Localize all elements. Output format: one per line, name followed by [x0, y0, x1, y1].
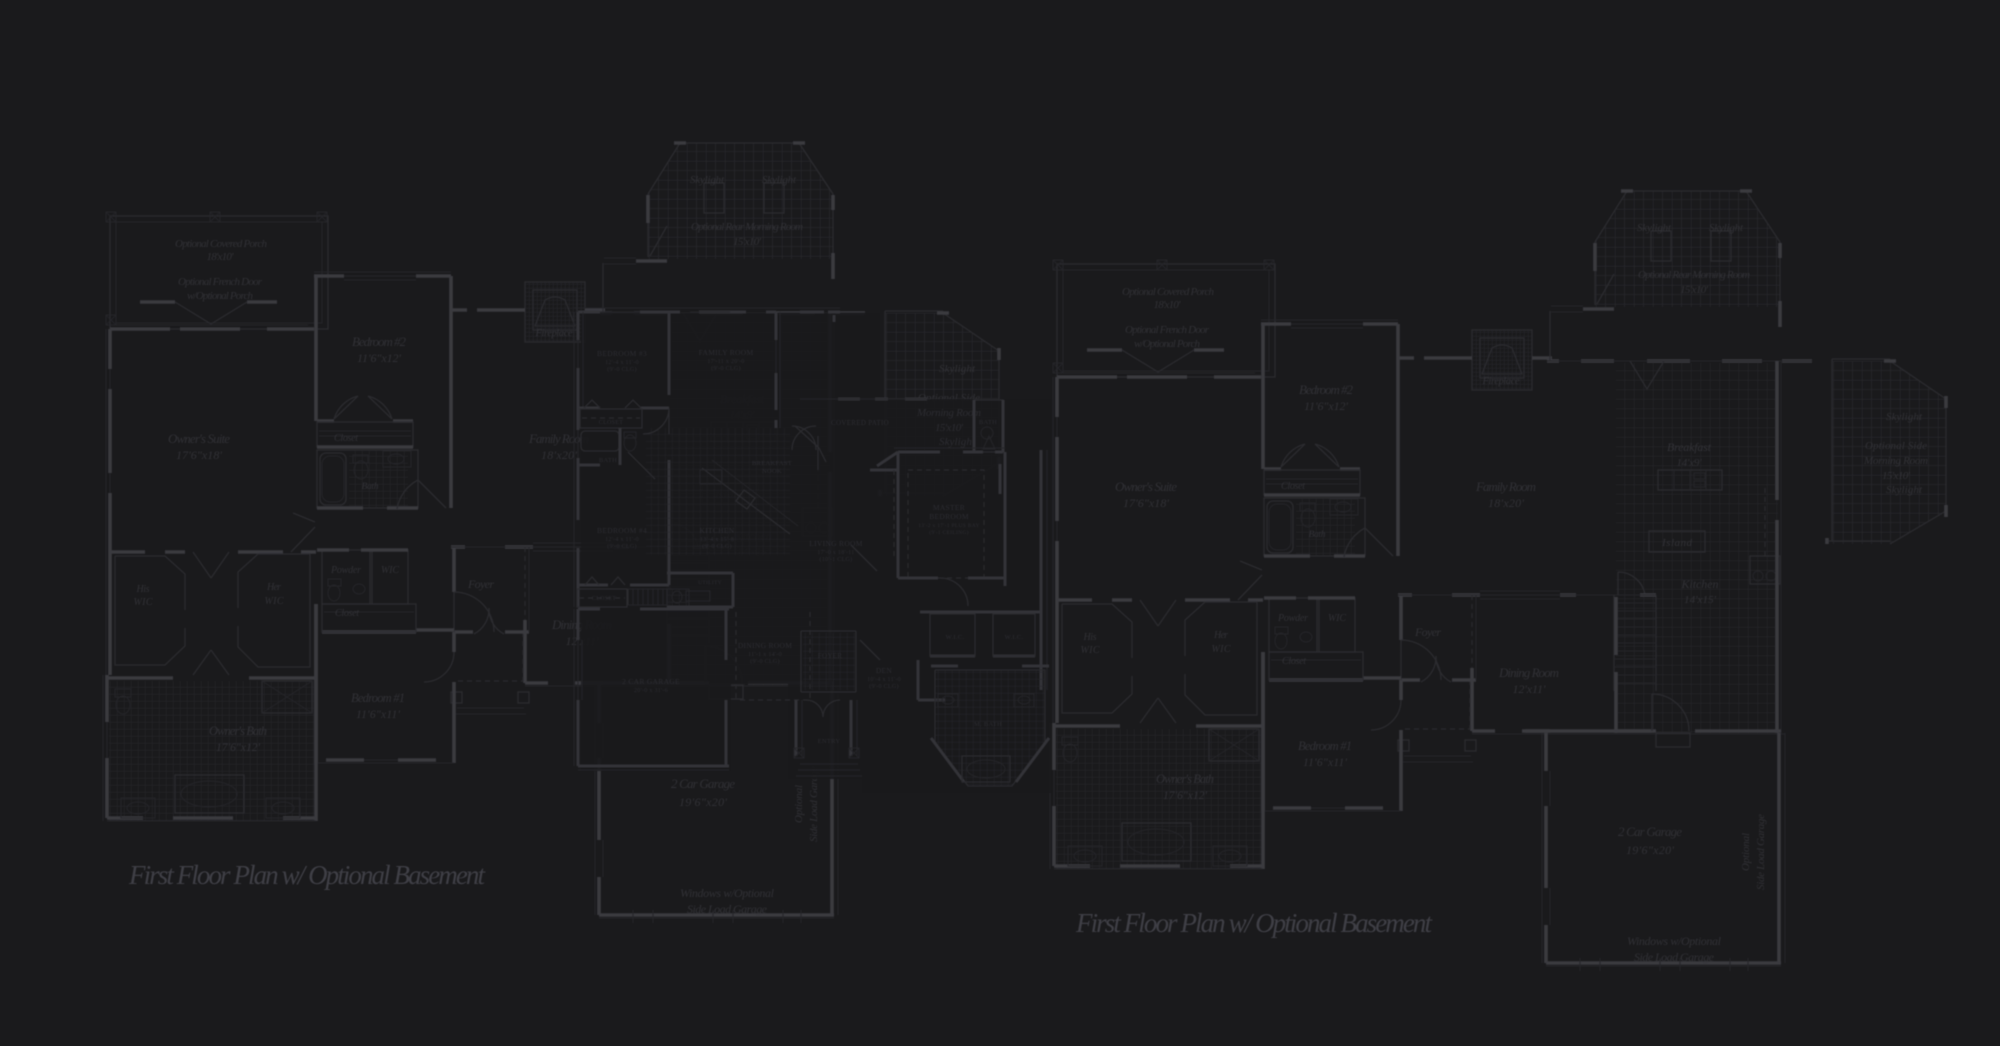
svg-text:BATH: BATH	[979, 419, 997, 426]
svg-text:(9'-1 CEILING): (9'-1 CEILING)	[929, 529, 969, 536]
svg-text:BREAKFAST: BREAKFAST	[752, 460, 792, 467]
svg-text:(9'-0 CLG): (9'-0 CLG)	[607, 366, 637, 373]
svg-text:W.I.C.: W.I.C.	[1005, 634, 1024, 641]
svg-text:13'-2 x 17'-1 PLUS BAY: 13'-2 x 17'-1 PLUS BAY	[918, 523, 980, 529]
svg-text:LIVING ROOM: LIVING ROOM	[809, 539, 863, 548]
svg-text:CLOSET: CLOSET	[599, 420, 624, 426]
svg-text:(9'-0 CLG): (9'-0 CLG)	[607, 543, 637, 550]
svg-text:Skylight: Skylight	[939, 436, 976, 448]
svg-text:13'-4 x 15'-8: 13'-4 x 15'-8	[700, 537, 734, 543]
svg-text:DEN: DEN	[876, 666, 893, 675]
svg-text:CLOSET: CLOSET	[592, 596, 617, 602]
svg-text:KITCHEN: KITCHEN	[699, 526, 734, 535]
svg-text:COVERED PATIO: COVERED PATIO	[831, 419, 889, 427]
svg-text:17'-0 x 18'-11: 17'-0 x 18'-11	[817, 550, 854, 556]
svg-text:10'-4 x 11'-0: 10'-4 x 11'-0	[867, 677, 901, 683]
svg-text:NOOK: NOOK	[762, 468, 782, 475]
svg-text:FOYER: FOYER	[818, 652, 842, 660]
svg-text:2 CAR GARAGE: 2 CAR GARAGE	[622, 677, 680, 686]
svg-text:M. BATH: M. BATH	[974, 721, 1002, 728]
svg-text:(10'-1 CLG): (10'-1 CLG)	[820, 556, 853, 563]
svg-text:DINING ROOM: DINING ROOM	[738, 641, 792, 650]
svg-text:Morning Room: Morning Room	[916, 407, 981, 419]
svg-text:(9'-0 CLG): (9'-0 CLG)	[711, 365, 741, 372]
svg-text:UTILITY: UTILITY	[698, 580, 722, 586]
svg-text:ENTRY: ENTRY	[818, 738, 841, 745]
svg-text:BEDROOM #4: BEDROOM #4	[597, 526, 647, 535]
svg-text:W.I.C.: W.I.C.	[946, 634, 965, 641]
svg-text:MASTER: MASTER	[933, 503, 965, 512]
svg-text:17'-11 x 20'-0: 17'-11 x 20'-0	[707, 359, 744, 365]
svg-text:(9'-0 CLG): (9'-0 CLG)	[869, 683, 899, 690]
svg-text:15'x10': 15'x10'	[935, 422, 964, 434]
svg-text:FAMILY ROOM: FAMILY ROOM	[699, 348, 754, 357]
svg-text:BEDROOM #3: BEDROOM #3	[597, 349, 647, 358]
svg-text:20'-0 x 31'-6: 20'-0 x 31'-6	[634, 688, 668, 694]
svg-text:(9'-0 CLG): (9'-0 CLG)	[702, 543, 732, 550]
svg-text:11'-1 x 14'-0: 11'-1 x 14'-0	[748, 652, 782, 658]
svg-text:BATH: BATH	[599, 457, 617, 464]
svg-text:BEDROOM: BEDROOM	[929, 512, 969, 521]
svg-text:12'-4 x 11'-0: 12'-4 x 11'-0	[605, 360, 639, 366]
svg-text:(9'-0 CLG): (9'-0 CLG)	[750, 658, 780, 665]
svg-text:12'-4 x 11'-0: 12'-4 x 11'-0	[605, 537, 639, 543]
